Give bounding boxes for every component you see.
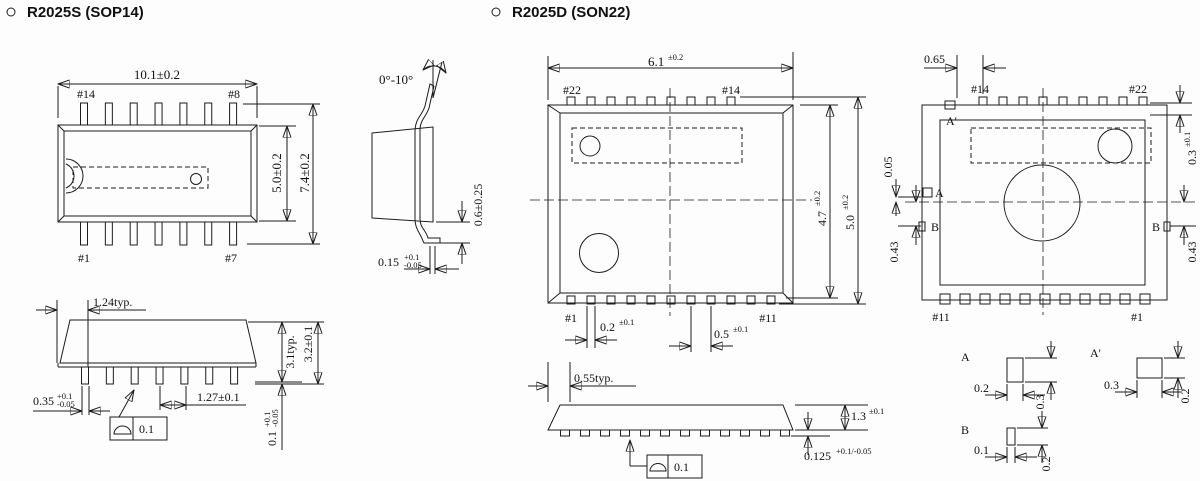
dim-width: 6.1 <box>648 54 664 69</box>
seating-plane-icon <box>114 426 131 434</box>
pad <box>1080 294 1090 304</box>
dim-lead-pitch: 1.27±0.1 <box>197 390 240 404</box>
pad <box>81 222 88 245</box>
dim-overall-height: 3.2±0.1 <box>301 326 315 363</box>
drawing-geometry <box>922 105 1167 300</box>
pin-label: #22 <box>1129 82 1147 96</box>
pad <box>230 222 237 245</box>
pad <box>1040 294 1050 304</box>
pad <box>106 367 113 384</box>
pad <box>231 367 238 384</box>
pin-label: #1 <box>565 311 577 325</box>
detail-height: 0.2 <box>1178 389 1192 404</box>
drawing-geometry <box>58 125 257 222</box>
flatness-frame: 0.1 <box>110 390 167 440</box>
detail-label: A' <box>1090 346 1101 360</box>
dim-body-height: 3.1typ. <box>283 335 297 368</box>
pin-label: #7 <box>225 251 237 265</box>
detail-height: 0.3 <box>1033 395 1047 410</box>
drawing-geometry: -0.05 <box>270 409 280 427</box>
crystal-mark <box>1004 165 1080 241</box>
pin1-notch-inner <box>66 164 74 188</box>
pin-label: #14 <box>722 83 740 97</box>
pad <box>960 294 970 304</box>
crystal-mark <box>580 234 619 273</box>
pad <box>1140 294 1150 304</box>
die-pad-outline <box>971 128 1151 163</box>
pad <box>205 103 212 125</box>
bullet-icon <box>7 8 15 16</box>
pad <box>1079 97 1087 105</box>
pad <box>130 222 137 245</box>
pad <box>105 222 112 245</box>
drawing-canvas: R2025S (SOP14) R2025D (SON22) #14 #8 #1 … <box>0 0 1200 481</box>
dim-tol-minus: -0.05 <box>57 399 75 409</box>
son22-top-pads <box>567 97 735 105</box>
detail-a-prime: A' 0.3 0.2 <box>1090 341 1192 404</box>
drawing-geometry <box>783 105 793 113</box>
detail-label: A <box>961 350 970 364</box>
pad <box>156 367 163 384</box>
pin-label: #14 <box>77 87 95 101</box>
pin-label: #11 <box>932 310 950 324</box>
drawing-geometry <box>548 105 560 113</box>
dim-lead-width: 0.35 <box>33 394 54 408</box>
drawing-geometry <box>940 120 1145 285</box>
die-pad-outline <box>73 167 208 188</box>
drawing-geometry <box>548 105 793 303</box>
dim-body-height: 4.7 ±0.2 <box>812 191 829 226</box>
dim-pad-thickness-tol: +0.1/-0.05 <box>836 446 872 456</box>
dim-pad-a-offset: 0.05 <box>881 157 895 178</box>
pad <box>979 97 987 105</box>
sop14-side-view: 0°-10° 0.6±0.25 0.15 +0.1 -0.05 <box>372 60 485 274</box>
pin-label: #1 <box>78 251 90 265</box>
pad <box>1020 294 1030 304</box>
drawing-geometry: ±0.1 <box>1182 132 1192 147</box>
drawing-geometry <box>58 216 64 222</box>
angle-arc <box>423 66 446 73</box>
pad <box>621 430 630 436</box>
son22-side-view: 0.55typ. 1.3 ±0.1 0.125 +0.1/-0.05 0.1 <box>528 362 884 478</box>
label-a-prime: A' <box>946 114 957 128</box>
pad-a <box>923 188 932 197</box>
sop14-front-leads <box>82 367 238 384</box>
flatness-value: 0.1 <box>674 460 689 474</box>
dim-height: 1.3 <box>851 409 866 423</box>
flatness-value: 0.1 <box>139 422 154 436</box>
pad <box>81 103 88 125</box>
drawing-geometry <box>415 86 440 243</box>
detail-height: 0.2 <box>1039 457 1053 472</box>
dim-edge-offset: 0.55typ. <box>574 371 613 385</box>
sop14-top-leads <box>81 103 237 125</box>
dim-width: 10.1±0.2 <box>134 67 180 82</box>
drawing-geometry <box>372 127 433 222</box>
drawing-geometry: ±0.2 <box>812 191 822 206</box>
pad <box>681 430 690 436</box>
pad <box>1060 294 1070 304</box>
pad <box>155 222 162 245</box>
pad <box>131 367 138 384</box>
pad <box>741 430 750 436</box>
die-mark <box>580 136 600 156</box>
dim-standoff: 0.1 +0.1 -0.05 <box>262 409 280 446</box>
dim-lead-thickness: 0.15 <box>378 255 399 269</box>
drawing-geometry: 4.7 <box>815 211 829 226</box>
drawing-geometry <box>251 216 257 222</box>
flatness-frame: 0.1 <box>630 440 702 478</box>
drawing-geometry <box>548 293 560 303</box>
pad <box>761 430 770 436</box>
dim-overall-height: 7.4±0.2 <box>297 153 312 193</box>
pad <box>667 97 675 105</box>
dim-body-height: 5.0±0.2 <box>269 153 284 193</box>
title-left: R2025S (SOP14) <box>7 4 144 21</box>
pin-label: #22 <box>563 83 581 97</box>
drawing-geometry <box>119 390 134 417</box>
page-title-sop14: R2025S (SOP14) <box>27 4 144 21</box>
pad <box>627 97 635 105</box>
pad <box>687 97 695 105</box>
pad <box>130 103 137 125</box>
drawing-geometry <box>60 320 256 363</box>
pad <box>561 430 570 436</box>
detail-b: B 0.1 0.2 <box>961 411 1053 472</box>
page-title-son22: R2025D (SON22) <box>512 4 630 21</box>
pad-detail <box>1007 358 1023 382</box>
drawing-geometry <box>64 131 251 216</box>
pad <box>180 222 187 245</box>
pad <box>980 294 990 304</box>
pad <box>567 97 575 105</box>
drawing-geometry: 0.1 <box>265 431 279 446</box>
dim-overall-height: 5.0 ±0.2 <box>840 195 857 230</box>
pin-label: #1 <box>1131 310 1143 324</box>
dim-pad-b-offset-right: 0.43 <box>1185 242 1199 263</box>
drawing-geometry <box>548 405 793 430</box>
label-b-left: B <box>931 220 939 234</box>
pad <box>940 294 950 304</box>
pin-label: #8 <box>228 87 240 101</box>
pad-detail <box>1137 358 1162 378</box>
pad <box>1120 294 1130 304</box>
pad <box>727 97 735 105</box>
pad <box>206 367 213 384</box>
pad <box>1100 294 1110 304</box>
pad <box>205 222 212 245</box>
dim-pad-width: 0.2 <box>600 320 615 334</box>
drawing-geometry <box>560 113 783 293</box>
drawing-geometry: ±0.2 <box>840 195 850 210</box>
dim-height-tol: ±0.1 <box>869 406 884 416</box>
pad <box>82 367 89 384</box>
pad <box>105 103 112 125</box>
package-drawing-page: R2025S (SOP14) R2025D (SON22) #14 #8 #1 … <box>0 0 1200 481</box>
dim-width-tol: ±0.2 <box>668 52 683 62</box>
pad <box>1019 97 1027 105</box>
pad-detail <box>1007 428 1015 445</box>
detail-label: B <box>961 423 969 437</box>
die-pad-outline <box>572 128 742 163</box>
detail-width: 0.1 <box>974 443 989 457</box>
pad <box>781 430 790 436</box>
title-right: R2025D (SON22) <box>492 4 630 21</box>
dim-edge-offset: 0.65 <box>924 52 945 66</box>
drawing-geometry: 5.0 <box>843 215 857 230</box>
pad <box>641 430 650 436</box>
label-b-right: B <box>1152 220 1160 234</box>
dim-lead-angle: 0°-10° <box>379 72 413 87</box>
pad <box>601 430 610 436</box>
pad <box>587 97 595 105</box>
dim-top-pad: 0.3 ±0.1 <box>1182 132 1199 165</box>
pad <box>155 103 162 125</box>
son22-side-pads <box>561 430 790 436</box>
pad <box>607 97 615 105</box>
pad <box>1099 97 1107 105</box>
detail-width: 0.3 <box>1104 378 1119 392</box>
pad <box>707 97 715 105</box>
pad <box>181 367 188 384</box>
pin-label: #11 <box>759 311 777 325</box>
bullet-icon <box>492 8 500 16</box>
dim-tol-minus: -0.05 <box>404 260 422 270</box>
son22-top-view: #22 #14 #1 #11 6.1 ±0.2 0.2 ±0.1 0.5 ±0.… <box>530 52 866 352</box>
pad <box>999 97 1007 105</box>
drawing-geometry <box>58 125 64 131</box>
label-a: A <box>935 186 944 200</box>
pad <box>701 430 710 436</box>
drawing-geometry <box>415 84 434 132</box>
pad <box>1139 97 1147 105</box>
dim-pad-pitch-tol: ±0.1 <box>733 324 748 334</box>
pad <box>1059 97 1067 105</box>
pad <box>230 103 237 125</box>
seating-plane-icon <box>650 464 666 471</box>
son22b-bottom-pads <box>940 294 1150 304</box>
die-mark <box>1098 129 1132 163</box>
son22b-top-pads <box>979 97 1147 105</box>
pin-label: #14 <box>971 82 989 96</box>
detail-width: 0.2 <box>974 381 989 395</box>
sop14-front-view: 1.24typ. 0.35 +0.1 -0.05 1.27±0.1 0.1 3.… <box>33 295 324 450</box>
pad <box>1000 294 1010 304</box>
pad <box>721 430 730 436</box>
sop14-bottom-leads <box>81 222 237 245</box>
dim-pad-b-offset: 0.43 <box>887 242 901 263</box>
pad <box>647 97 655 105</box>
drawing-geometry: 0.3 <box>1185 150 1199 165</box>
dim-pad-width-tol: ±0.1 <box>619 317 634 327</box>
pad <box>180 103 187 125</box>
dim-edge-offset: 1.24typ. <box>93 295 132 309</box>
drawing-geometry <box>251 125 257 131</box>
die-mark <box>191 174 202 185</box>
sop14-top-view: #14 #8 #1 #7 10.1±0.2 5.0±0.2 7.4±0.2 <box>58 67 320 265</box>
detail-a: A 0.2 0.3 <box>961 341 1057 410</box>
dim-pad-thickness: 0.125 <box>804 449 831 463</box>
son22-bottom-view: #14 #22 #11 #1 A' 0.65 0.3 ±0.1 A B B 0.… <box>881 52 1199 324</box>
pad <box>1119 97 1127 105</box>
dim-pad-pitch: 0.5 <box>714 327 729 341</box>
pad <box>661 430 670 436</box>
dim-foot-length: 0.6±0.25 <box>471 184 485 227</box>
pad <box>581 430 590 436</box>
